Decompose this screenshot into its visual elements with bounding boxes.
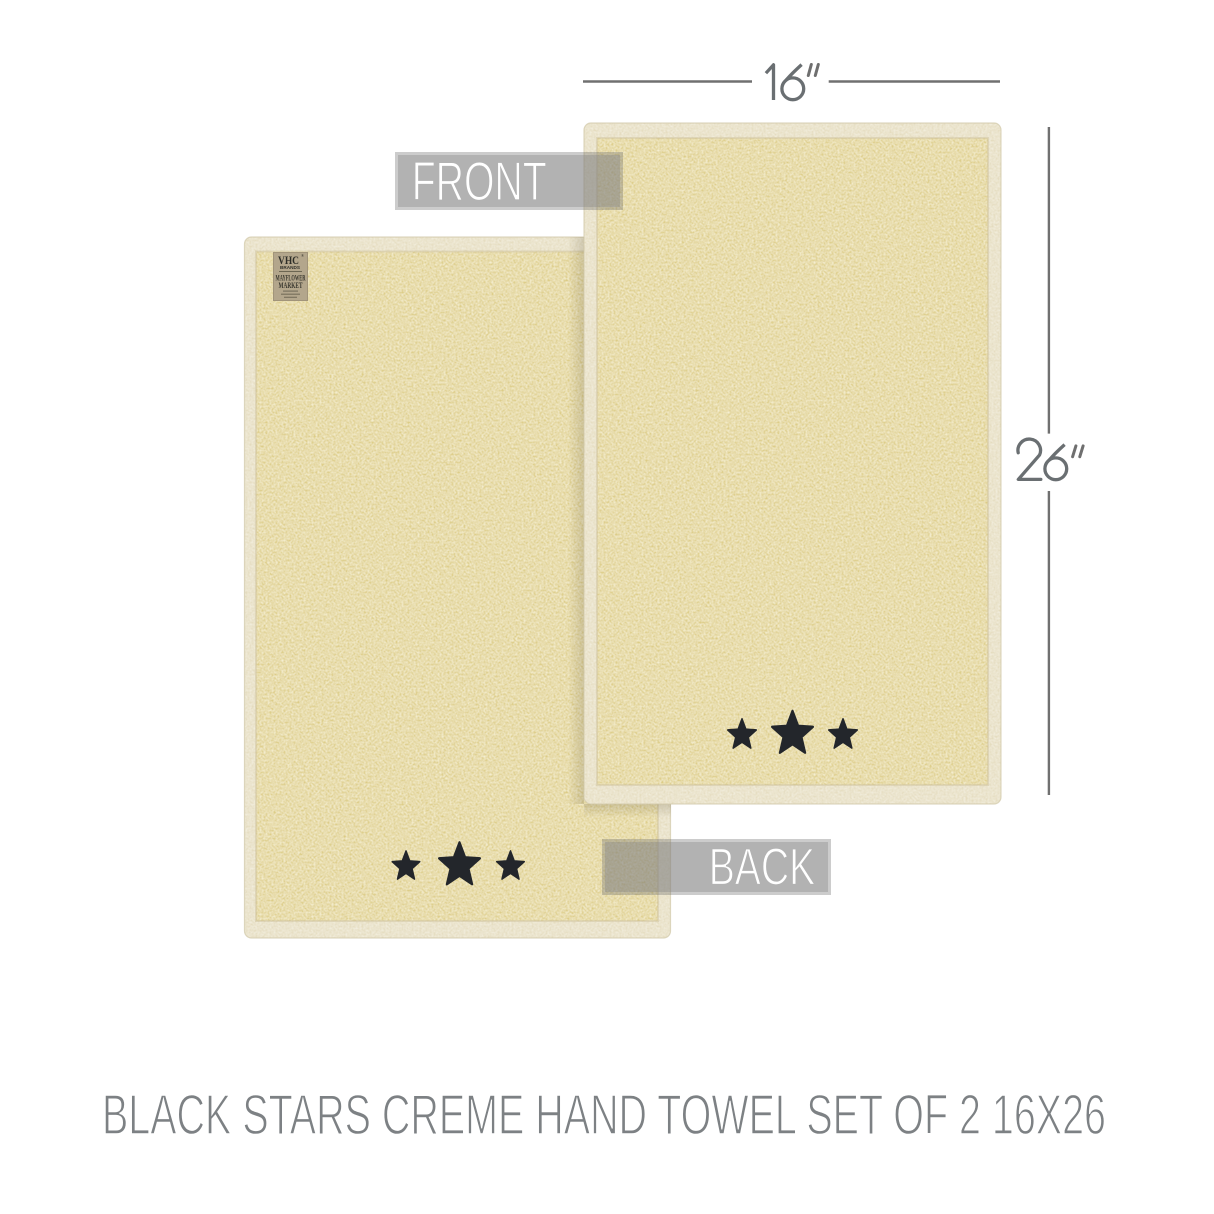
svg-text:BLACK STARS CREME HAND TOWEL S: BLACK STARS CREME HAND TOWEL SET OF 2 16…	[102, 1084, 1106, 1147]
svg-text:MARKET: MARKET	[279, 281, 303, 290]
svg-text:BACK: BACK	[709, 839, 816, 897]
svg-text:FRONT: FRONT	[412, 150, 547, 212]
svg-text:®: ®	[301, 253, 304, 258]
svg-text:BRANDS: BRANDS	[280, 265, 300, 270]
